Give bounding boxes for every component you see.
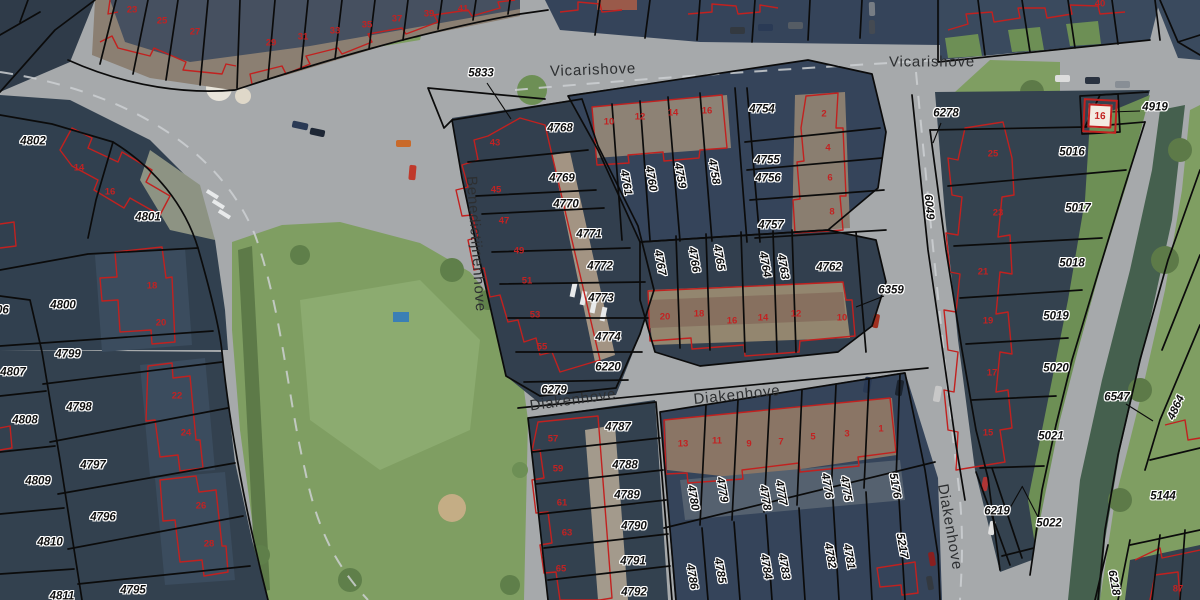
map-canvas[interactable]: 16 5833476847694770477147724773477462206… (0, 0, 1200, 600)
aerial-cadastral-layer (0, 0, 1200, 600)
